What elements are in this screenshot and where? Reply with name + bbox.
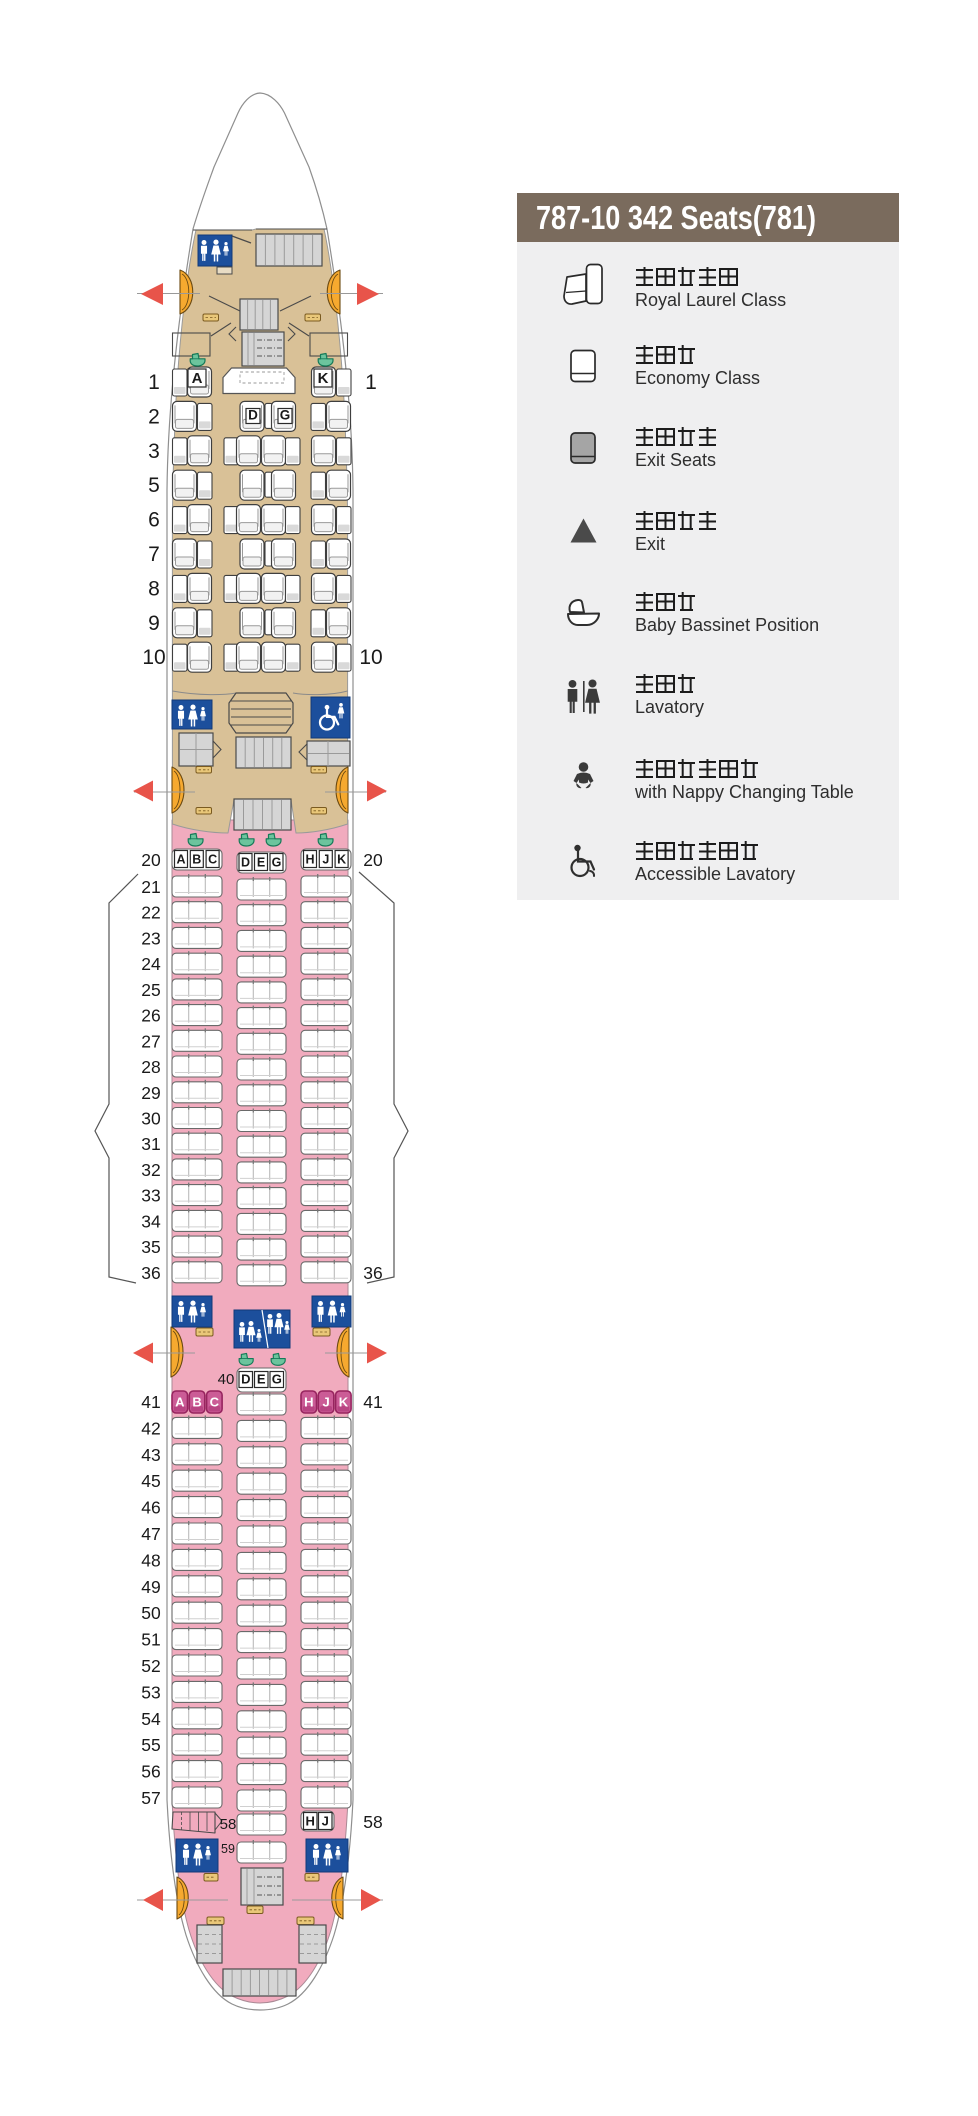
svg-text:33: 33 — [141, 1186, 160, 1206]
svg-text:B: B — [192, 1395, 201, 1410]
svg-text:D: D — [241, 1372, 250, 1387]
svg-text:Accessible Lavatory: Accessible Lavatory — [635, 864, 795, 884]
svg-text:G: G — [280, 408, 291, 423]
svg-text:K: K — [339, 1395, 349, 1410]
svg-text:C: C — [210, 1395, 220, 1410]
svg-text:E: E — [257, 856, 265, 870]
svg-text:45: 45 — [141, 1471, 160, 1491]
svg-text:1: 1 — [148, 371, 160, 394]
svg-text:10: 10 — [359, 646, 382, 669]
svg-text:K: K — [337, 853, 346, 867]
svg-text:H: H — [305, 853, 314, 867]
svg-text:41: 41 — [363, 1392, 382, 1412]
svg-text:5: 5 — [148, 474, 160, 497]
svg-text:26: 26 — [141, 1006, 160, 1026]
svg-text:59: 59 — [221, 1842, 235, 1856]
svg-text:41: 41 — [141, 1392, 160, 1412]
svg-text:J: J — [322, 1814, 329, 1829]
svg-text:24: 24 — [141, 954, 161, 974]
svg-text:35: 35 — [141, 1237, 160, 1257]
svg-text:58: 58 — [220, 1816, 237, 1833]
svg-text:G: G — [272, 856, 282, 870]
svg-text:57: 57 — [141, 1788, 160, 1808]
svg-text:Royal Laurel Class: Royal Laurel Class — [635, 290, 786, 310]
svg-text:A: A — [175, 1395, 185, 1410]
svg-text:54: 54 — [141, 1709, 161, 1729]
svg-text:50: 50 — [141, 1603, 161, 1623]
svg-text:J: J — [322, 1395, 329, 1410]
svg-text:51: 51 — [141, 1630, 160, 1650]
svg-text:10: 10 — [142, 646, 165, 669]
svg-text:56: 56 — [141, 1762, 160, 1782]
svg-text:Exit Seats: Exit Seats — [635, 450, 716, 470]
svg-text:3: 3 — [148, 440, 160, 463]
svg-text:30: 30 — [141, 1109, 161, 1129]
svg-text:Lavatory: Lavatory — [635, 697, 704, 717]
svg-text:D: D — [248, 408, 258, 423]
svg-text:A: A — [176, 853, 185, 867]
svg-text:21: 21 — [141, 877, 160, 897]
svg-text:23: 23 — [141, 928, 160, 948]
svg-text:A: A — [192, 370, 203, 387]
svg-text:6: 6 — [148, 509, 160, 532]
svg-text:G: G — [272, 1372, 282, 1387]
svg-text:22: 22 — [141, 903, 160, 923]
svg-text:J: J — [322, 853, 329, 867]
svg-text:25: 25 — [141, 980, 160, 1000]
svg-text:34: 34 — [141, 1211, 161, 1231]
svg-text:E: E — [257, 1372, 266, 1387]
svg-text:52: 52 — [141, 1656, 160, 1676]
svg-text:Exit: Exit — [635, 534, 665, 554]
svg-text:D: D — [241, 856, 250, 870]
svg-text:47: 47 — [141, 1524, 160, 1544]
svg-text:7: 7 — [148, 543, 160, 566]
svg-text:20: 20 — [363, 850, 383, 870]
svg-text:B: B — [192, 853, 201, 867]
svg-text:1: 1 — [365, 371, 377, 394]
svg-text:with Nappy Changing Table: with Nappy Changing Table — [634, 782, 854, 802]
svg-text:787-10 342 Seats(781): 787-10 342 Seats(781) — [536, 199, 816, 236]
svg-text:C: C — [208, 853, 217, 867]
svg-text:8: 8 — [148, 577, 160, 600]
svg-text:29: 29 — [141, 1083, 160, 1103]
svg-text:H: H — [306, 1814, 315, 1829]
svg-text:K: K — [318, 370, 329, 387]
svg-text:43: 43 — [141, 1445, 160, 1465]
svg-text:31: 31 — [141, 1134, 160, 1154]
svg-text:Economy Class: Economy Class — [635, 368, 760, 388]
svg-text:55: 55 — [141, 1735, 160, 1755]
svg-text:48: 48 — [141, 1550, 160, 1570]
svg-text:46: 46 — [141, 1498, 160, 1518]
svg-text:H: H — [304, 1395, 313, 1410]
svg-text:42: 42 — [141, 1418, 160, 1438]
svg-text:53: 53 — [141, 1682, 160, 1702]
svg-text:40: 40 — [218, 1371, 235, 1388]
svg-text:9: 9 — [148, 612, 160, 635]
svg-text:Baby Bassinet Position: Baby Bassinet Position — [635, 615, 819, 635]
svg-text:20: 20 — [141, 850, 161, 870]
svg-text:58: 58 — [363, 1812, 382, 1832]
svg-text:27: 27 — [141, 1031, 160, 1051]
svg-text:2: 2 — [148, 405, 160, 428]
svg-text:32: 32 — [141, 1160, 160, 1180]
svg-text:49: 49 — [141, 1577, 160, 1597]
svg-text:28: 28 — [141, 1057, 160, 1077]
svg-text:36: 36 — [141, 1263, 160, 1283]
